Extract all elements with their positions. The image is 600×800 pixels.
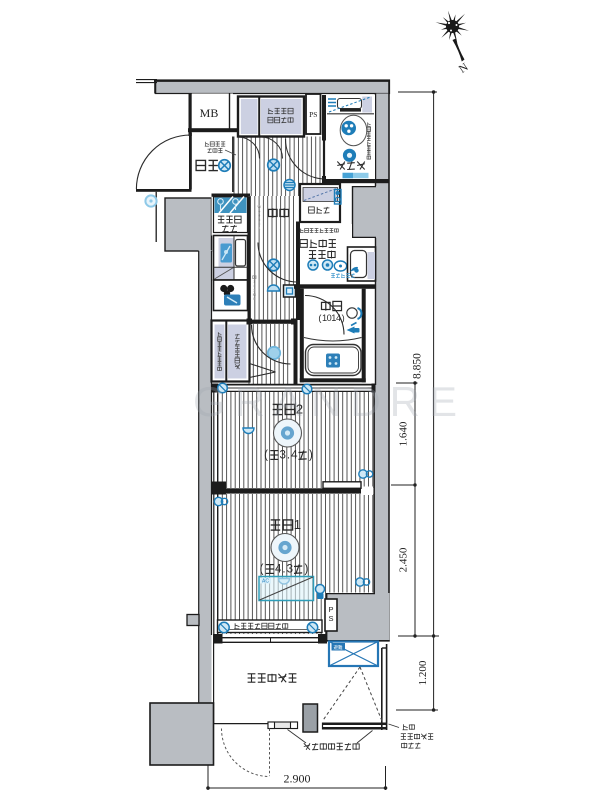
svg-text:1.200: 1.200 bbox=[417, 660, 429, 685]
svg-text:): ) bbox=[309, 450, 313, 462]
svg-text:.: . bbox=[287, 450, 290, 462]
svg-text:3: 3 bbox=[287, 564, 293, 576]
svg-text:8.850: 8.850 bbox=[412, 353, 424, 379]
svg-text:避難: 避難 bbox=[334, 644, 343, 651]
svg-text:P: P bbox=[328, 605, 333, 614]
svg-text:.: . bbox=[282, 564, 285, 576]
svg-text:MB: MB bbox=[200, 106, 219, 120]
svg-text:GRANDRE: GRANDRE bbox=[193, 378, 466, 425]
svg-text:4: 4 bbox=[275, 564, 282, 576]
svg-text:S: S bbox=[328, 614, 333, 623]
svg-text:(: ( bbox=[264, 450, 268, 462]
svg-text:3: 3 bbox=[279, 450, 285, 462]
svg-text:PS: PS bbox=[309, 110, 317, 119]
svg-text:1: 1 bbox=[294, 517, 301, 532]
svg-text:2.900: 2.900 bbox=[284, 772, 311, 786]
svg-text:AC: AC bbox=[262, 579, 269, 585]
svg-text:(: ( bbox=[260, 564, 264, 576]
svg-text:4: 4 bbox=[291, 450, 298, 462]
svg-text:): ) bbox=[304, 564, 308, 576]
svg-text:2.450: 2.450 bbox=[398, 547, 410, 572]
